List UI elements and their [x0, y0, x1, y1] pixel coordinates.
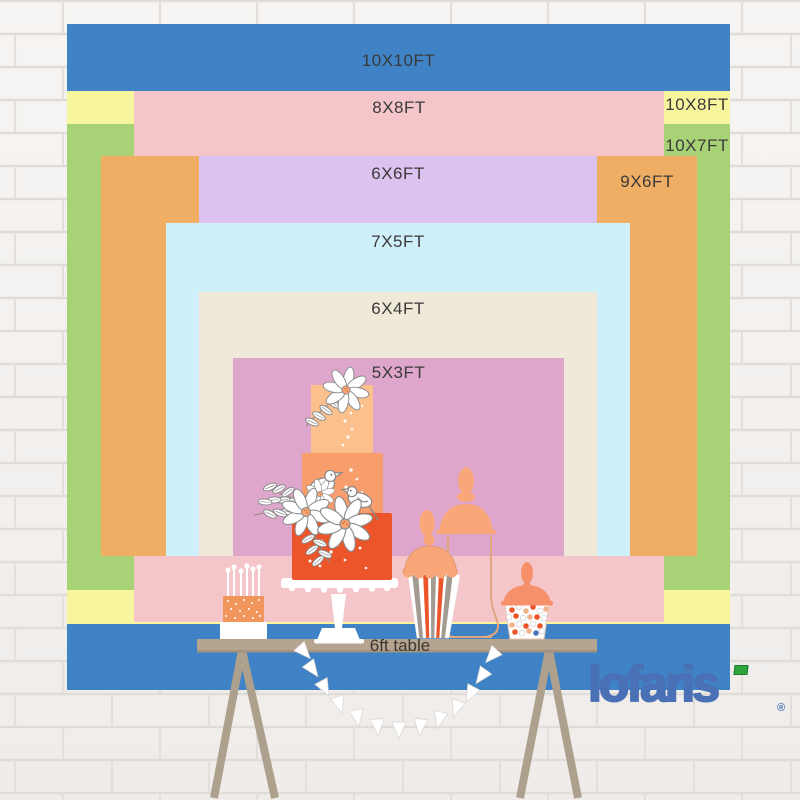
registered-mark: ®: [777, 702, 785, 714]
size-label-6x4ft: 6X4FT: [199, 299, 597, 319]
size-label-10x10ft: 10X10FT: [67, 51, 730, 71]
size-label-5x3ft: 5X3FT: [233, 363, 564, 383]
table-size-label: 6ft table: [340, 636, 460, 656]
size-label-6x6ft: 6X6FT: [199, 164, 597, 184]
size-label-10x7ft: 10X7FT: [664, 136, 730, 156]
size-label-10x8ft: 10X8FT: [664, 95, 730, 115]
backdrop-layer-5x3ft: [233, 358, 564, 556]
logo-flag-icon: [733, 665, 748, 675]
size-label-9x6ft: 9X6FT: [597, 172, 697, 192]
lofaris-logo: lofaris ®: [588, 652, 793, 727]
backdrop-size-chart: 10X10FT 10X8FT 10X7FT 8X8FT 9X6FT 6X6FT …: [67, 24, 730, 690]
logo-text: lofaris: [588, 652, 717, 716]
product-image: 10X10FT 10X8FT 10X7FT 8X8FT 9X6FT 6X6FT …: [0, 0, 800, 800]
size-label-7x5ft: 7X5FT: [166, 232, 630, 252]
size-label-8x8ft: 8X8FT: [134, 98, 664, 118]
